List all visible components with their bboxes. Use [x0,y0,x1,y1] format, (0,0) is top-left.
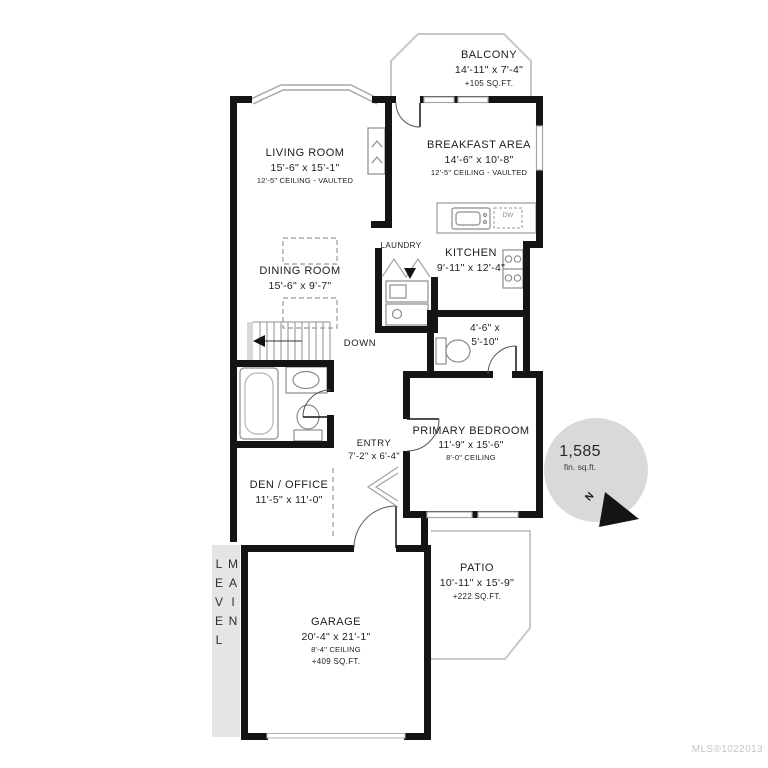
area-badge: 1,585 fin. sq.ft. [559,443,601,472]
mls-watermark: MLS®1022013 [692,744,763,755]
patio-area: +222 SQ.FT. [440,591,514,602]
breakfast-area-dims: 14'-6" x 10'-8" [427,153,531,168]
entry-closet-doors [368,467,398,507]
stairs [247,322,330,360]
bathroom-sink-icon [286,367,327,393]
toilet-icon [294,405,322,441]
patio-dims: 10'-11" x 15'-9" [440,576,514,591]
kitchen-sink-icon [452,208,490,229]
balcony-dims: 14'-11" x 7'-4" [455,63,523,78]
total-finished-area-unit: fin. sq.ft. [559,462,601,472]
entry-dims: 7'-2" x 6'-4" [348,450,400,463]
bathtub-icon [240,368,278,439]
laundry-bifold-doors [382,259,430,279]
room-label-breakfast-area: BREAKFAST AREA 14'-6" x 10'-8" 12'-5" CE… [427,138,531,179]
bathroom-dims-line2: 5'-10" [470,336,500,350]
room-label-balcony: BALCONY 14'-11" x 7'-4" +105 SQ.FT. [455,48,523,89]
total-finished-area: 1,585 [559,443,601,461]
dishwasher-label: DW [503,212,514,219]
stove-icon [503,250,523,288]
room-label-entry: ENTRY 7'-2" x 6'-4" [348,437,400,464]
room-label-primary-bedroom: PRIMARY BEDROOM 11'-9" x 15'-6" 8'-0" CE… [412,424,529,464]
garage-area: +409 SQ.FT. [301,656,370,667]
dryer-icon [386,304,428,325]
level-label: MAIN LEVEL [212,557,240,737]
garage-door [267,734,405,739]
dining-room-name: DINING ROOM [259,264,340,279]
den-office-dims: 11'-5" x 11'-0" [250,493,329,508]
patio-name: PATIO [440,561,514,576]
dining-room-dims: 15'-6" x 9'-7" [259,279,340,294]
front-door [354,506,396,548]
room-label-kitchen: KITCHEN 9'-11" x 12'-4" [437,246,505,276]
entry-name: ENTRY [348,437,400,450]
living-room-name: LIVING ROOM [257,146,353,161]
floorplan-page: BALCONY 14'-11" x 7'-4" +105 SQ.FT. LIVI… [0,0,768,768]
garage-dims: 20'-4" x 21'-1" [301,630,370,645]
bathroom-dims-line1: 4'-6" x [470,322,500,336]
room-label-laundry: LAUNDRY [381,240,422,251]
room-label-garage: GARAGE 20'-4" x 21'-1" 8'-4" CEILING +40… [301,615,370,667]
washer-icon [386,281,428,302]
room-label-patio: PATIO 10'-11" x 15'-9" +222 SQ.FT. [440,561,514,602]
bathroom2-door [488,346,516,374]
room-label-living-room: LIVING ROOM 15'-6" x 15'-1" 12'-5" CEILI… [257,146,353,187]
living-room-ceiling-note: 12'-5" CEILING - VAULTED [257,176,353,187]
bay-window [251,85,379,104]
fireplace-icon [368,128,385,174]
breakfast-area-ceiling-note: 12'-5" CEILING - VAULTED [427,168,531,179]
kitchen-dims: 9'-11" x 12'-4" [437,261,505,276]
room-label-den-office: DEN / OFFICE 11'-5" x 11'-0" [250,478,329,508]
den-office-name: DEN / OFFICE [250,478,329,493]
kitchen-name: KITCHEN [437,246,505,261]
breakfast-area-name: BREAKFAST AREA [427,138,531,153]
primary-bedroom-ceiling-note: 8'-0" CEILING [412,453,529,464]
stairs-down-label: DOWN [344,337,376,350]
garage-name: GARAGE [301,615,370,630]
laundry-name: LAUNDRY [381,240,422,251]
room-label-bathroom: 4'-6" x 5'-10" [470,322,500,350]
stairs-direction-arrow [253,335,265,347]
balcony-area: +105 SQ.FT. [455,78,523,89]
balcony-door [396,103,420,127]
level-label-band: MAIN LEVEL [212,545,240,737]
living-room-dims: 15'-6" x 15'-1" [257,161,353,176]
primary-bedroom-dims: 11'-9" x 15'-6" [412,439,529,453]
floorplan-drawing [0,0,768,768]
garage-ceiling-note: 8'-4" CEILING [301,645,370,656]
primary-bedroom-name: PRIMARY BEDROOM [412,424,529,439]
room-label-dining-room: DINING ROOM 15'-6" x 9'-7" [259,264,340,294]
toilet-icon [436,338,470,364]
balcony-name: BALCONY [455,48,523,63]
